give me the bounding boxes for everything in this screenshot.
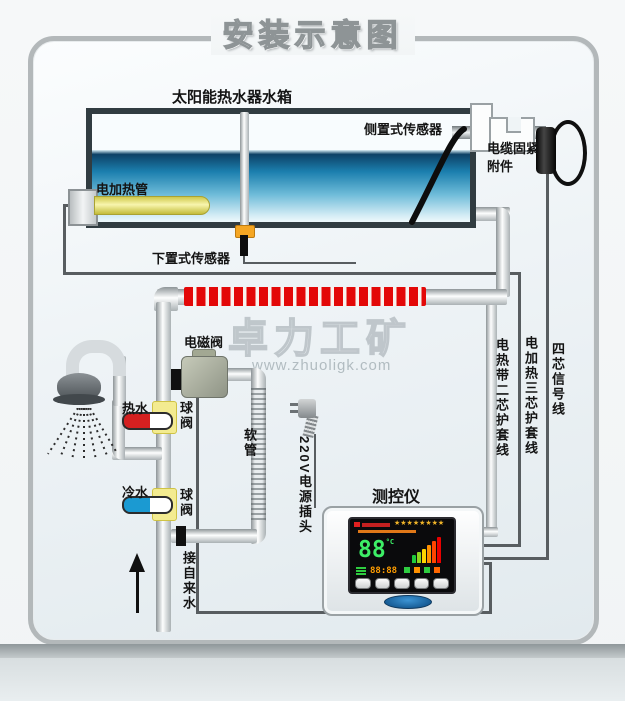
diagram-title: 安装示意图	[211, 10, 415, 55]
ball-valve-label-cold: 球阀	[176, 488, 195, 518]
button-row	[355, 578, 449, 589]
screen-subtext	[358, 530, 416, 533]
shower-spray	[44, 408, 120, 462]
riser-pipe	[156, 302, 171, 632]
heater-wire	[63, 204, 66, 274]
plug-cord	[314, 434, 316, 508]
tap-water-label: 接自来水	[179, 551, 198, 611]
cable-fastener-notch	[506, 117, 521, 133]
controller-screen: ★★★★★★★★ 88°C 88:88	[348, 517, 456, 594]
bottom-sensor-label: 下置式传感器	[152, 248, 230, 267]
level-bar	[437, 537, 441, 563]
power-plug-icon	[298, 399, 316, 418]
temp-unit: °C	[386, 538, 394, 546]
status-glyph	[424, 567, 430, 573]
solenoid-valve-label: 电磁阀	[184, 332, 223, 351]
controller-button[interactable]	[433, 578, 449, 589]
screen-logo	[354, 522, 360, 527]
watermark-url: www.zhuoligk.com	[252, 357, 391, 374]
temp-value: 88	[358, 537, 386, 563]
status-glyph	[404, 567, 410, 573]
heater-wire-label: 电加热三芯护套线	[521, 336, 540, 456]
level-bars	[412, 535, 448, 563]
soft-tube-label: 软管	[240, 428, 259, 458]
signal-wire	[480, 557, 549, 560]
ball-valve-label-hot: 球阀	[176, 401, 195, 431]
tee-fitting	[176, 526, 186, 546]
side-sensor-label: 侧置式传感器	[364, 119, 442, 138]
shower-arch-pipe	[66, 340, 126, 376]
cable-fastener-label: 电缆固紧附件	[487, 140, 543, 175]
controller-button[interactable]	[414, 578, 430, 589]
mode-icon	[356, 567, 366, 575]
level-bar	[417, 552, 421, 563]
hot-water-label: 热水	[122, 398, 148, 417]
level-bar	[432, 541, 436, 563]
brand-badge	[384, 595, 432, 609]
temp-display: 88°C	[358, 539, 394, 562]
soft-tube	[251, 388, 266, 530]
solenoid-valve	[181, 356, 228, 398]
cold-water-label: 冷水	[122, 482, 148, 501]
electric-heater-tube	[94, 196, 210, 215]
panel-base-shadow	[0, 644, 625, 658]
status-glyph	[414, 567, 420, 573]
watermark-text: 卓力工矿	[228, 306, 412, 364]
bottom-sensor-tip	[240, 235, 248, 256]
time-display: 88:88	[370, 567, 397, 576]
panel-base-floor	[0, 658, 625, 701]
shower-head-rim	[53, 394, 105, 405]
controller-button[interactable]	[375, 578, 391, 589]
flow-arrow	[136, 571, 139, 613]
bottom-sensor-tube	[240, 112, 249, 227]
controller-button[interactable]	[355, 578, 371, 589]
tank-label: 太阳能热水器水箱	[172, 86, 292, 107]
heater-label: 电加热管	[96, 179, 148, 198]
controller-label: 测控仪	[372, 483, 420, 507]
heating-band-wire-label: 电热带二芯护套线	[492, 338, 511, 458]
power-plug-label: 220V电源插头	[295, 436, 314, 534]
level-bar	[427, 545, 431, 563]
heating-band	[184, 287, 426, 306]
tank-outlet-pipe	[496, 207, 510, 297]
level-bar	[422, 549, 426, 563]
signal-wire-label: 四芯信号线	[548, 342, 567, 417]
level-bar	[412, 555, 416, 563]
status-glyph	[434, 567, 440, 573]
bottom-sensor-wire	[243, 262, 356, 264]
solenoid-wire	[489, 562, 492, 614]
flow-arrow-head	[129, 553, 145, 572]
heater-wire	[480, 544, 521, 547]
screen-red-text	[362, 523, 390, 527]
controller-button[interactable]	[394, 578, 410, 589]
heater-wire	[63, 272, 521, 275]
screen-stars: ★★★★★★★★	[394, 520, 444, 527]
